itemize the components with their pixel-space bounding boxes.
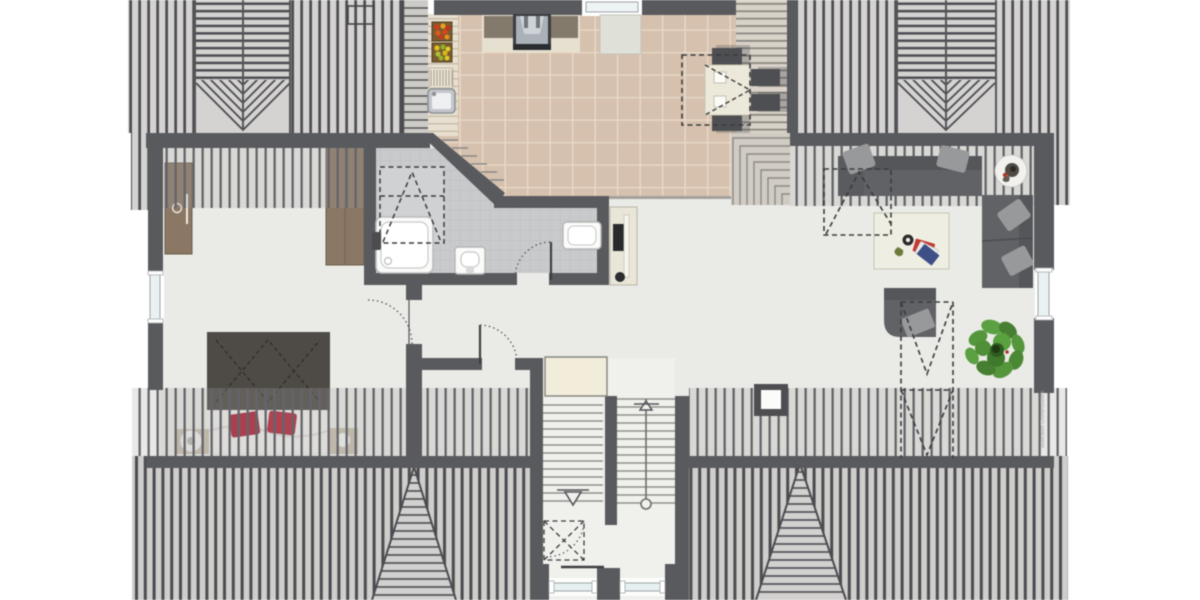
svg-text:Illustration GrundrissWerk: Illustration GrundrissWerk: [1040, 390, 1046, 448]
